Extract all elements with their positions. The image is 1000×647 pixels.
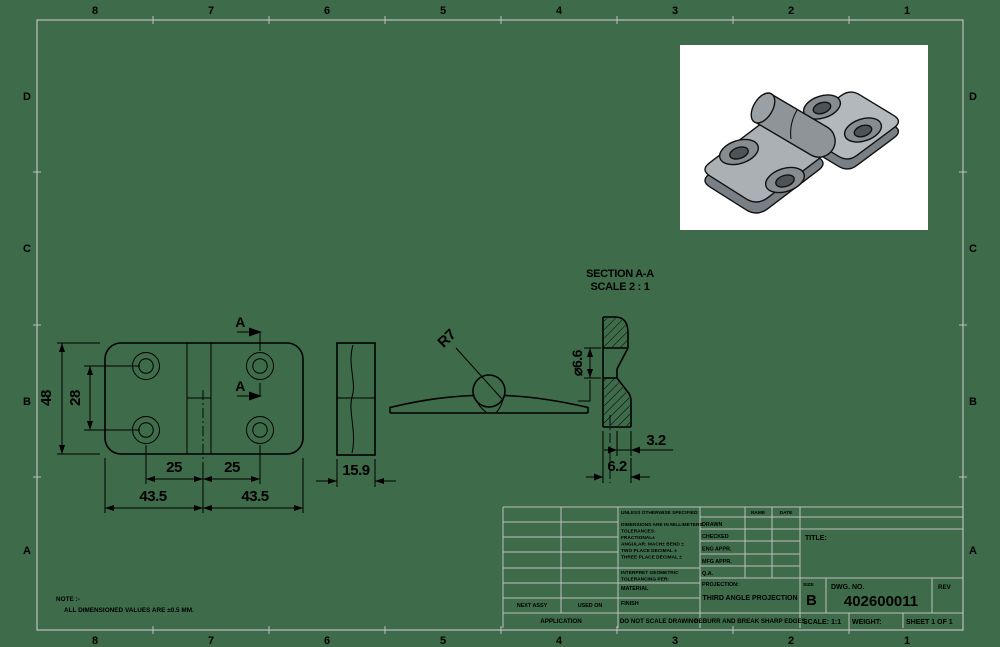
title-label: TITLE: (805, 535, 827, 542)
isometric-image (680, 45, 928, 230)
zone-col-label: 8 (92, 635, 98, 647)
approval-row-label: CHECKED (702, 534, 729, 540)
sheet-label: SHEET 1 OF 1 (906, 619, 953, 626)
dim-text-25-right: 25 (224, 459, 240, 476)
scale-label: SCALE: 1:1 (803, 619, 841, 626)
zone-row-label: B (23, 396, 31, 408)
dim-r7: R7 (434, 326, 502, 399)
zone-col-label: 8 (92, 5, 98, 17)
zone-col-label: 3 (672, 635, 678, 647)
zone-col-label: 5 (440, 635, 446, 647)
projection-value: THIRD ANGLE PROJECTION (702, 595, 797, 602)
zone-col-label: 7 (208, 635, 214, 647)
section-view: SECTION A-A SCALE 2 : 1 ⌀6.6 (569, 268, 673, 483)
zone-col-label: 5 (440, 5, 446, 17)
interpret-line: INTERPRET GEOMETRIC (621, 570, 679, 576)
zone-row-label: C (969, 243, 977, 255)
zone-col-label: 1 (904, 635, 910, 647)
finish-label: FINISH (621, 601, 639, 607)
zone-col-label: 4 (556, 635, 563, 647)
tolerance-line: ANGULAR: MACH± BEND ± (621, 542, 684, 548)
profile-view: R7 (390, 326, 588, 413)
zone-labels-top: 8 7 6 5 4 3 2 1 (92, 5, 910, 17)
dim-text-43-5-left: 43.5 (139, 488, 166, 505)
profile-right-leaf (505, 396, 588, 414)
weight-label: WEIGHT: (852, 619, 882, 626)
interpret-line: TOLERANCING PER: (621, 577, 669, 583)
zone-col-label: 2 (788, 635, 794, 647)
profile-knuckle-circle (473, 375, 505, 407)
zone-labels-right: D C B A (969, 91, 977, 557)
tolerance-line: DIMENSIONS ARE IN MILLIMETERS (621, 522, 703, 528)
note-title: NOTE :- (56, 596, 80, 603)
section-letter-bottom: A (235, 378, 245, 394)
projection-label: PROJECTION: (702, 582, 739, 588)
approvals-block: NAME DATE DRAWN CHECKED ENG APPR. MFG AP… (694, 510, 806, 625)
zone-row-label: B (969, 396, 977, 408)
tolerance-line: TOLERANCES: (621, 529, 656, 535)
drawing-sheet: 8 7 6 5 4 3 2 1 8 7 6 5 4 3 2 1 D C B A (0, 0, 1000, 647)
do-not-scale-label: DO NOT SCALE DRAWING (620, 618, 699, 625)
zone-row-label: D (969, 91, 977, 103)
title-number-block: TITLE: SIZE B DWG. NO. 402600011 REV SCA… (803, 535, 953, 626)
zone-labels-left: D C B A (23, 91, 31, 557)
dim-6-2: 6.2 (586, 431, 650, 483)
profile-left-leaf (390, 396, 473, 414)
approval-row-label: DRAWN (702, 522, 722, 528)
dim-text-dia-6-6: ⌀6.6 (569, 349, 585, 376)
zone-col-label: 6 (324, 5, 330, 17)
zone-col-label: 2 (788, 5, 794, 17)
tolerance-line: FRACTIONAL± (621, 535, 655, 541)
zone-row-label: D (23, 91, 31, 103)
dim-text-6-2: 6.2 (607, 458, 627, 475)
date-column-header: DATE (780, 510, 794, 516)
dwg-number: 402600011 (844, 593, 918, 610)
approval-row-label: ENG APPR. (702, 547, 732, 553)
zone-col-label: 6 (324, 635, 330, 647)
used-on-label: USED ON (578, 603, 603, 609)
deburr-label: DEBURR AND BREAK SHARP EDGES (694, 618, 806, 625)
dim-dia-6-6: ⌀6.6 (569, 348, 601, 401)
side-profile-curve (351, 345, 354, 453)
dim-text-r7: R7 (434, 326, 459, 351)
dim-3-2: 3.2 (604, 431, 673, 456)
hatch-lower-body (604, 379, 630, 426)
section-letter-top: A (235, 314, 245, 330)
dim-43-5-pair: 43.5 43.5 (105, 458, 303, 513)
approval-row-label: Q.A. (702, 571, 714, 577)
title-block: UNLESS OTHERWISE SPECIFIED: DIMENSIONS A… (503, 507, 963, 628)
dim-28: 28 (67, 366, 140, 430)
zone-row-label: A (969, 545, 977, 557)
approval-row-label: MFG APPR. (702, 559, 732, 565)
dim-text-15-9: 15.9 (342, 462, 369, 479)
side-view: 15.9 (316, 343, 396, 487)
dim-text-3-2: 3.2 (646, 432, 666, 449)
section-cut-marks: A A (235, 314, 262, 401)
zone-row-label: A (23, 545, 31, 557)
zone-col-label: 4 (556, 5, 563, 17)
dim-text-48: 48 (38, 390, 55, 406)
tolerance-header: UNLESS OTHERWISE SPECIFIED: (621, 510, 699, 516)
application-label: APPLICATION (540, 618, 582, 625)
dim-15-9: 15.9 (316, 459, 396, 487)
material-label: MATERIAL (621, 586, 649, 592)
next-assy-label: NEXT ASSY (517, 603, 548, 609)
tolerance-line: TWO PLACE DECIMAL ± (621, 548, 677, 554)
size-value: B (806, 592, 817, 609)
zone-col-label: 1 (904, 5, 910, 17)
note-body: ALL DIMENSIONED VALUES ARE ±0.5 MM. (64, 607, 194, 614)
dim-text-28: 28 (67, 390, 84, 406)
zone-row-label: C (23, 243, 31, 255)
zone-col-label: 7 (208, 5, 214, 17)
drawing-note: NOTE :- ALL DIMENSIONED VALUES ARE ±0.5 … (56, 596, 194, 614)
zone-labels-bottom: 8 7 6 5 4 3 2 1 (92, 635, 910, 647)
front-view: 48 28 25 25 (38, 314, 303, 513)
rev-label: REV (938, 584, 952, 591)
name-column-header: NAME (751, 510, 766, 516)
zone-col-label: 3 (672, 5, 678, 17)
section-title: SECTION A-A (586, 268, 654, 280)
dim-text-25-left: 25 (166, 459, 182, 476)
size-label: SIZE (803, 582, 814, 588)
side-view-outline (337, 343, 375, 455)
section-scale: SCALE 2 : 1 (590, 281, 649, 293)
hatch-top-cap (604, 318, 627, 347)
dwg-no-label: DWG. NO. (831, 584, 864, 591)
application-block: NEXT ASSY USED ON APPLICATION (517, 603, 603, 625)
dim-text-43-5-right: 43.5 (241, 488, 268, 505)
tolerance-line: THREE PLACE DECIMAL ± (621, 555, 682, 561)
